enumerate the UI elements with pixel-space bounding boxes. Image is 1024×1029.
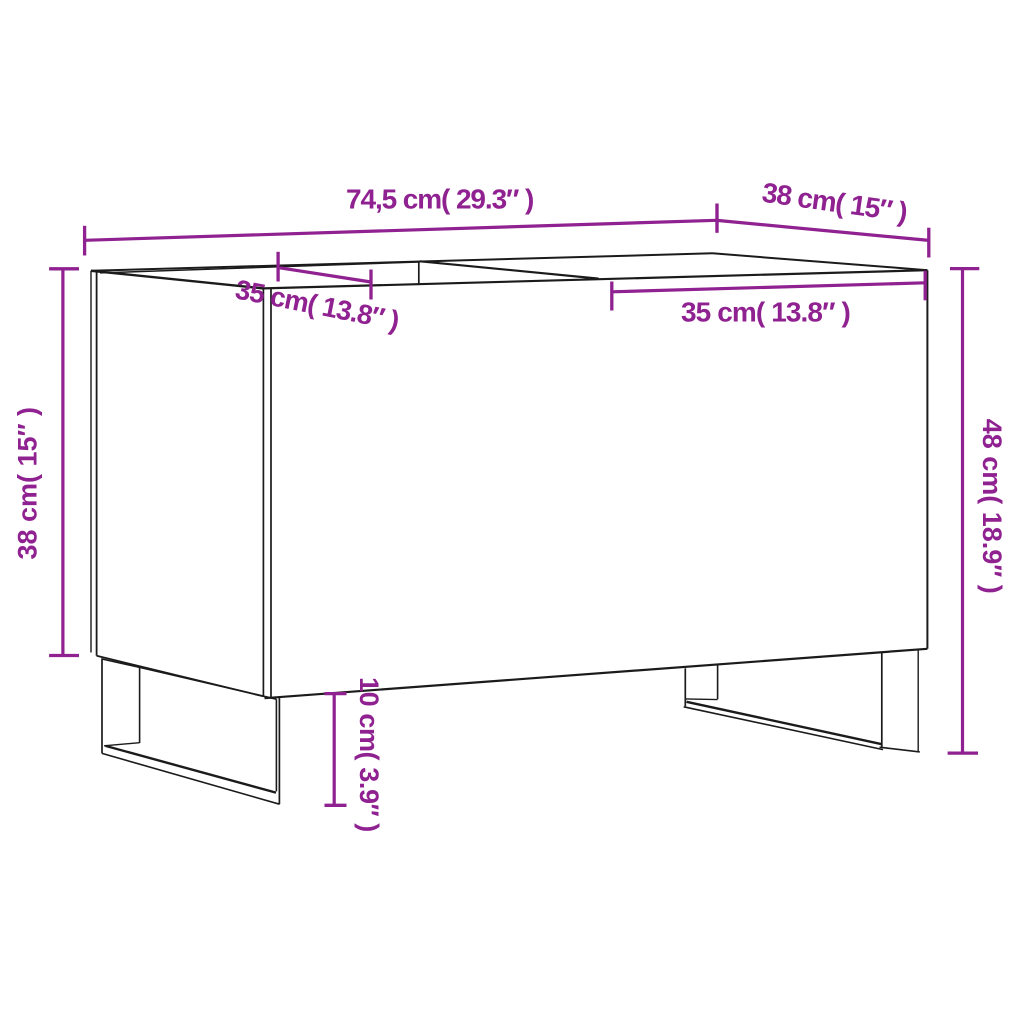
svg-text:35 cm( 13.8″ ): 35 cm( 13.8″ ): [681, 297, 850, 328]
svg-text:74,5 cm( 29.3″ ): 74,5 cm( 29.3″ ): [346, 183, 533, 214]
svg-text:48 cm( 18.9″ ): 48 cm( 18.9″ ): [977, 419, 1007, 594]
svg-text:10 cm( 3.9″ ): 10 cm( 3.9″ ): [354, 677, 384, 832]
svg-text:38 cm( 15″ ): 38 cm( 15″ ): [13, 407, 43, 560]
